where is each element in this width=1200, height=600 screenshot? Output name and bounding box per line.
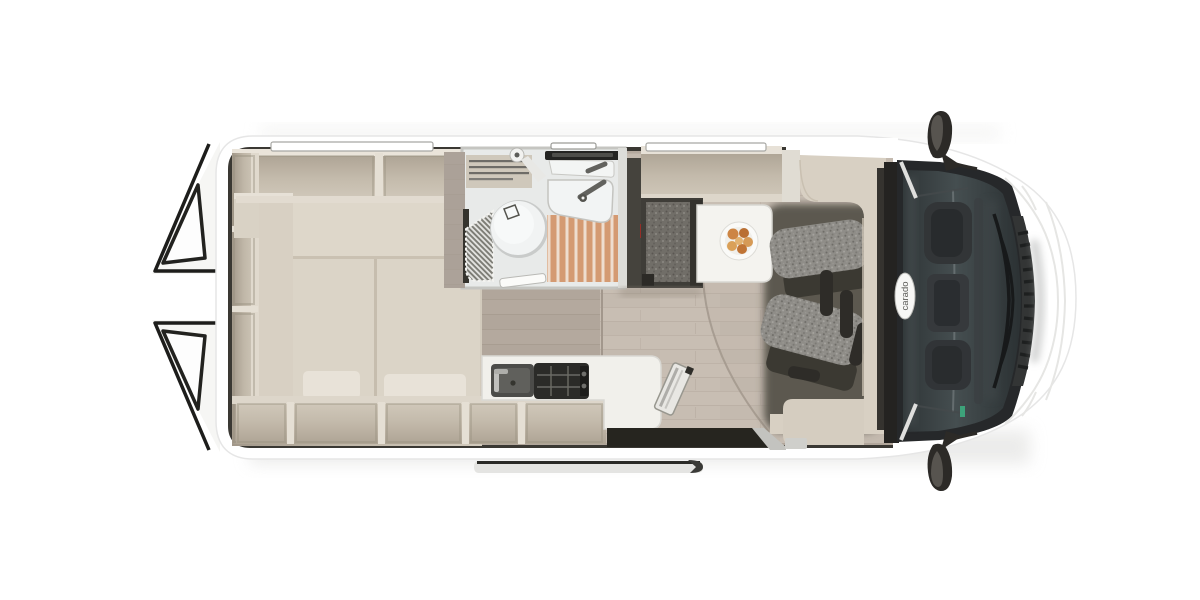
svg-text:carado: carado (900, 281, 911, 310)
